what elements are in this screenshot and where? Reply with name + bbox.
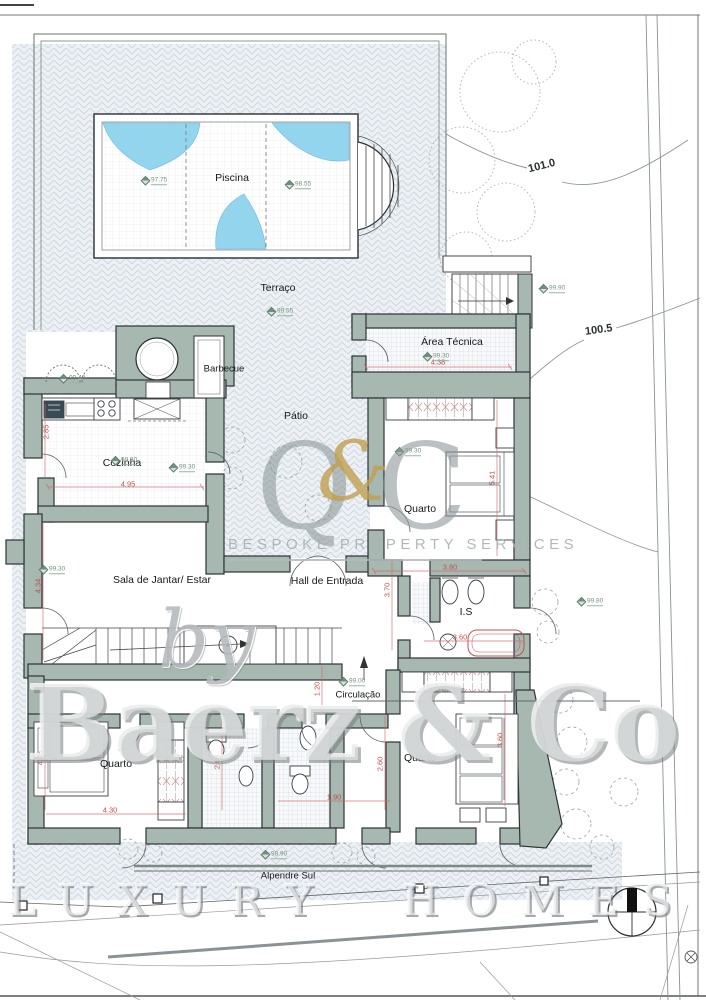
pool xyxy=(94,114,399,258)
trees xyxy=(429,40,556,284)
floor-plan: Piscina Terraço Barbecue Pátio Área Técn… xyxy=(0,0,706,1000)
floor-plan-drawing xyxy=(0,0,706,1000)
north-arrow-icon xyxy=(608,888,656,936)
